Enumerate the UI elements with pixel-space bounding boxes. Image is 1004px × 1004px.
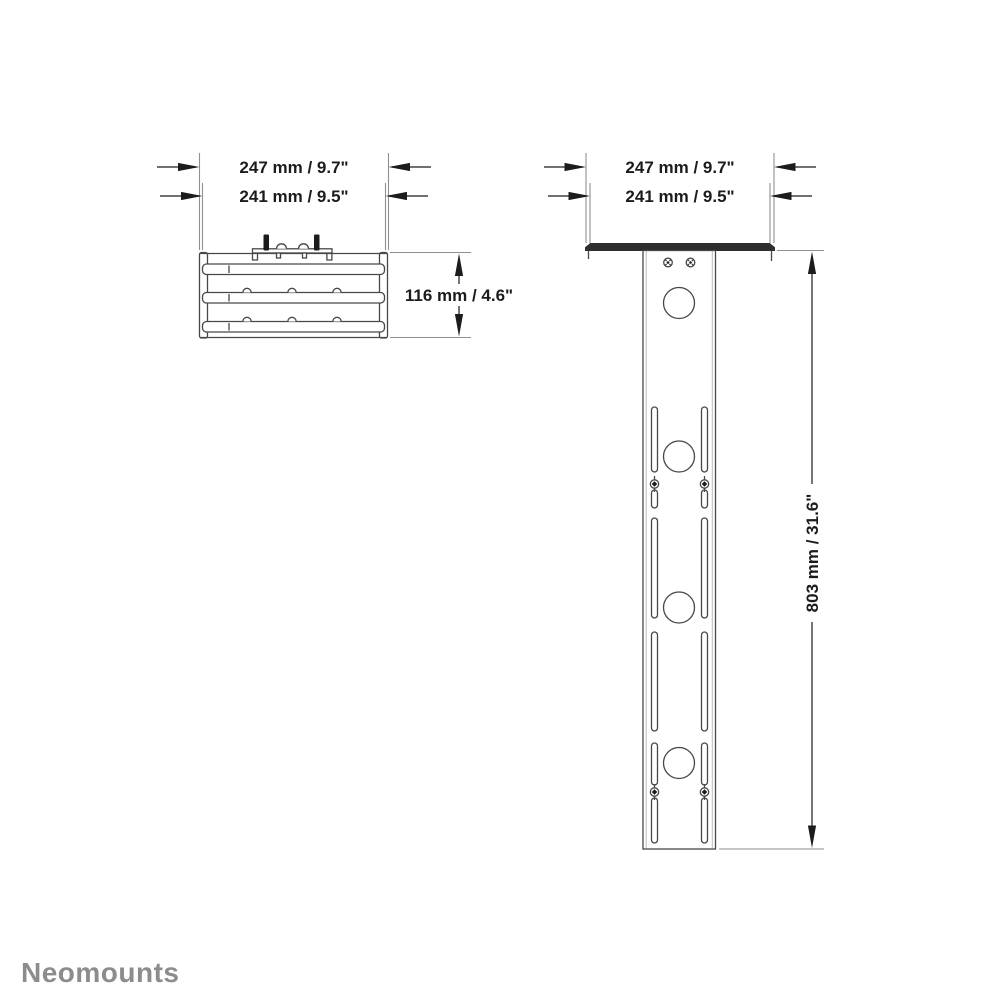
side-height-label: 803 mm / 31.6" xyxy=(803,494,822,613)
side-dim-width-inner: 241 mm / 9.5" xyxy=(548,187,812,206)
side-view-part xyxy=(586,244,775,850)
side-view: 247 mm / 9.7" 241 mm / 9.5" xyxy=(544,153,824,849)
front-width-outer-label: 247 mm / 9.7" xyxy=(239,158,348,177)
front-height-label: 116 mm / 4.6" xyxy=(405,286,513,305)
front-extension-lines xyxy=(200,153,472,338)
side-width-outer-label: 247 mm / 9.7" xyxy=(625,158,734,177)
column-body xyxy=(643,251,716,850)
front-view-part xyxy=(200,235,388,339)
technical-drawing-page: 247 mm / 9.7" 241 mm / 9.5" 116 mm / 4.6… xyxy=(0,0,1004,1004)
clamp-dome xyxy=(299,244,309,249)
side-dim-height: 803 mm / 31.6" xyxy=(803,252,822,849)
front-dim-width-inner: 241 mm / 9.5" xyxy=(160,187,428,206)
top-plate xyxy=(586,244,775,251)
clamp-bolt xyxy=(314,235,320,251)
side-width-inner-label: 241 mm / 9.5" xyxy=(625,187,734,206)
front-dim-height: 116 mm / 4.6" xyxy=(405,254,513,337)
neomounts-logo: Neomounts xyxy=(21,957,180,988)
clamp-bolt xyxy=(264,235,270,251)
clamp-dome xyxy=(277,244,287,249)
front-dim-width-outer: 247 mm / 9.7" xyxy=(157,158,431,177)
front-width-inner-label: 241 mm / 9.5" xyxy=(239,187,348,206)
side-dim-width-outer: 247 mm / 9.7" xyxy=(544,158,816,177)
dimension-drawing: 247 mm / 9.7" 241 mm / 9.5" 116 mm / 4.6… xyxy=(0,0,1004,1004)
front-view: 247 mm / 9.7" 241 mm / 9.5" 116 mm / 4.6… xyxy=(157,153,513,338)
top-clamp-assembly xyxy=(253,235,333,261)
shelf-rails xyxy=(203,264,385,332)
